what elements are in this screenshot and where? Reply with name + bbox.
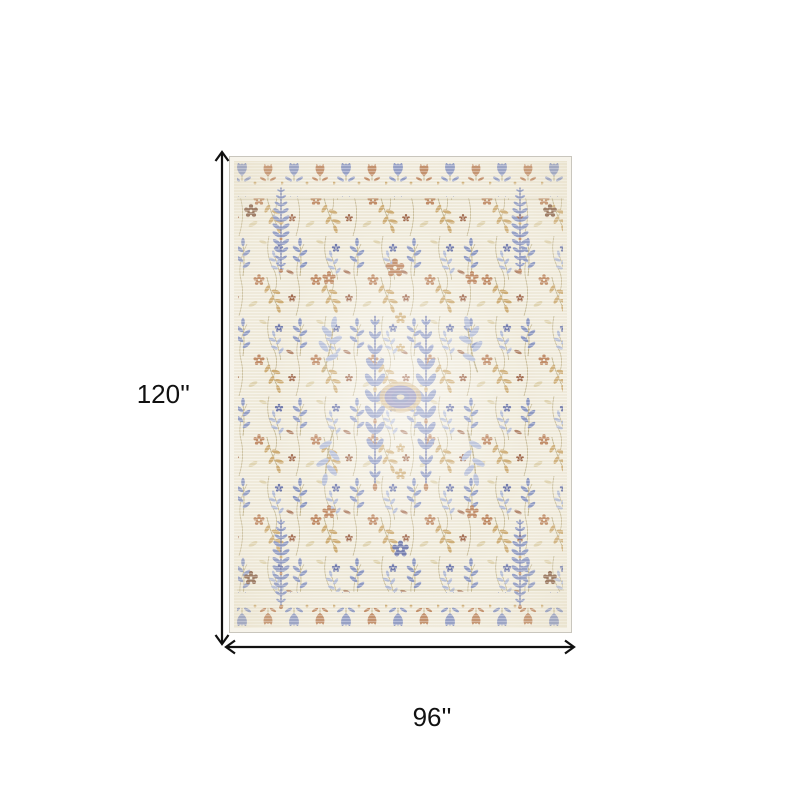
height-dimension-arrow (214, 149, 230, 647)
width-dimension-arrow (223, 639, 577, 655)
rug-artwork (229, 156, 572, 633)
product-dimension-diagram: 120'' 96'' (0, 0, 800, 800)
height-dimension-label: 120'' (118, 381, 190, 407)
rug-image (229, 156, 572, 633)
width-dimension-label: 96'' (400, 704, 464, 730)
